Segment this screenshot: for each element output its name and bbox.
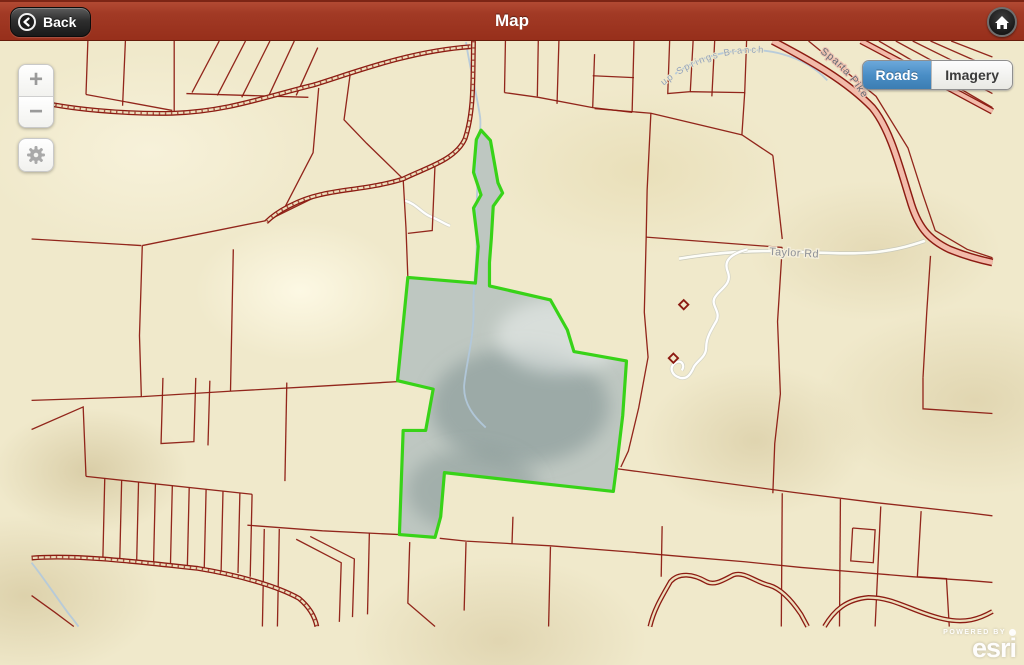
minus-icon: − — [29, 98, 43, 126]
header: Back Map — [0, 0, 1024, 41]
settings-button[interactable] — [18, 138, 54, 172]
taylor-rd-label: Taylor Rd — [769, 246, 819, 261]
home-icon — [994, 15, 1010, 30]
map-layers: Taylor Rd Sparta Pike up Springs Branch — [0, 41, 1024, 665]
map-app-window: Back Map — [0, 0, 1024, 665]
chevron-left-icon — [18, 13, 36, 31]
zoom-in-button[interactable]: + — [19, 65, 53, 97]
back-button[interactable]: Back — [10, 7, 91, 37]
back-button-label: Back — [43, 14, 76, 30]
esri-logo: esri — [943, 635, 1016, 662]
roads-toggle-button[interactable]: Roads — [863, 61, 932, 89]
selected-parcel[interactable] — [398, 42, 628, 537]
page-title: Map — [495, 11, 529, 31]
diamond-marker-icon — [679, 300, 688, 309]
roads-toggle-label: Roads — [876, 67, 919, 83]
basemap-toggle: Roads Imagery — [862, 60, 1014, 90]
home-button[interactable] — [987, 7, 1017, 37]
map-canvas[interactable]: Taylor Rd Sparta Pike up Springs Branch … — [0, 41, 1024, 665]
attribution: POWERED BY esri — [943, 629, 1016, 662]
zoom-controls: + − — [18, 64, 54, 128]
structure-markers — [669, 300, 689, 363]
imagery-toggle-label: Imagery — [945, 67, 999, 83]
gear-icon — [25, 144, 47, 166]
imagery-toggle-button[interactable]: Imagery — [931, 61, 1012, 89]
plus-icon: + — [29, 66, 43, 94]
zoom-out-button[interactable]: − — [19, 97, 53, 128]
